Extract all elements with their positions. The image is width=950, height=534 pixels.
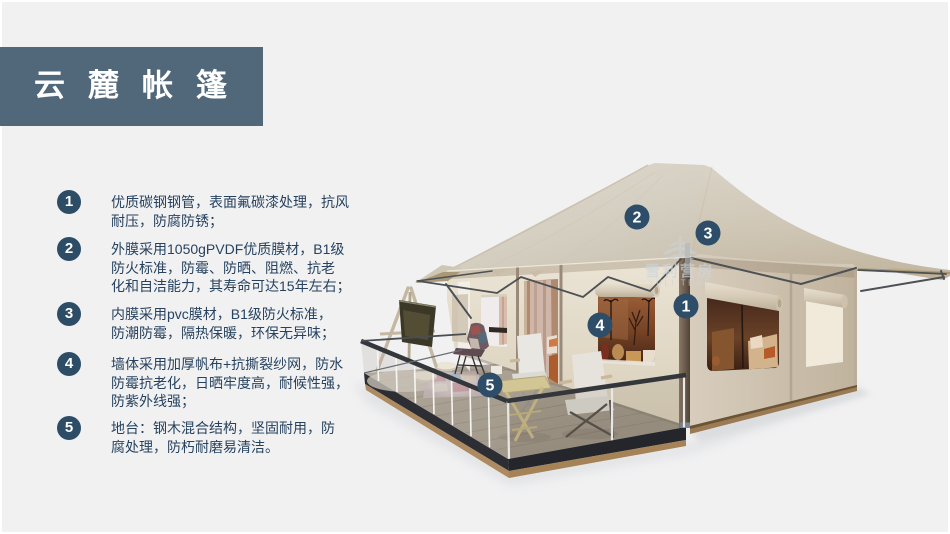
svg-text:雪利营房: 雪利营房 <box>645 262 715 280</box>
svg-text:4: 4 <box>596 318 605 335</box>
svg-text:5: 5 <box>486 378 495 395</box>
svg-text:YULI TENT: YULI TENT <box>648 279 711 288</box>
svg-text:3: 3 <box>704 226 713 243</box>
svg-text:2: 2 <box>633 210 642 227</box>
svg-text:1: 1 <box>682 299 691 316</box>
